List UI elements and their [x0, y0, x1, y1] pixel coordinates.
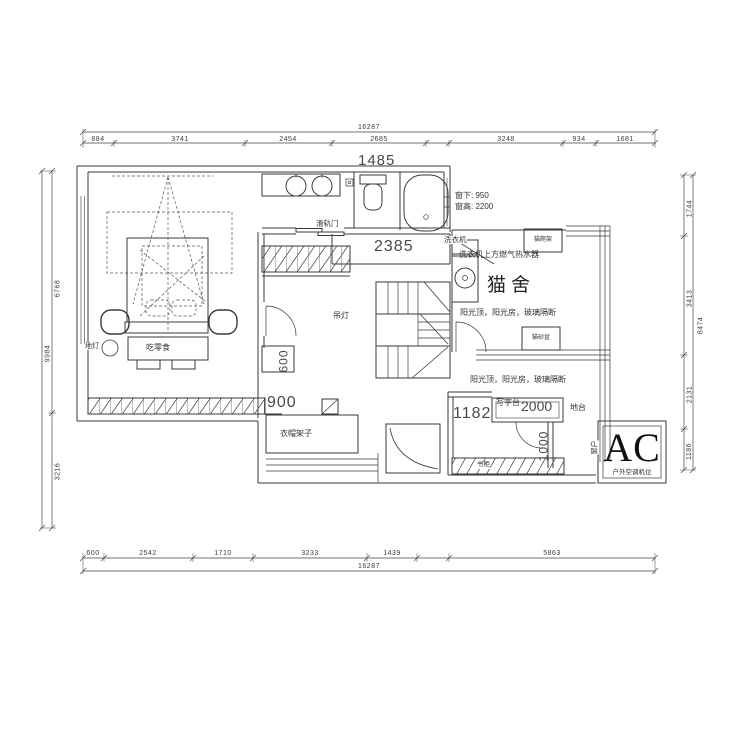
dim-bottom-seg: 3233 — [301, 550, 319, 557]
dim-closet-600: 600 — [278, 349, 290, 372]
dim-top-seg: 884 — [91, 136, 104, 143]
sunroom-note-2: 阳光顶，阳光房，玻璃隔断 — [470, 376, 566, 384]
dim-door-1000: 1000 — [537, 431, 549, 462]
sunroom-note-1: 阳光顶，阳光房，玻璃隔断 — [460, 309, 556, 317]
dim-right-seg: 2131 — [686, 386, 693, 404]
floor-plan: 16287 884 3741 2454 2685 3248 934 1681 6… — [0, 0, 740, 740]
desk-label-row: 写字台2000 — [496, 399, 552, 413]
window-height-note: 窗高: 2200 — [455, 203, 493, 211]
dim-top-seg: 3741 — [171, 136, 189, 143]
window-label-vertical: 窗户 — [592, 441, 599, 455]
dim-hall-2385: 2385 — [374, 239, 414, 255]
ac-unit-label: AC — [602, 428, 662, 468]
sliding-door-label: 滑轨门 — [316, 220, 339, 228]
dim-right-seg: 1744 — [686, 200, 693, 218]
dim-room-1182: 1182 — [453, 406, 491, 422]
floor-lamp-label: 地灯 — [85, 343, 99, 350]
dim-right-seg: 3413 — [686, 290, 693, 308]
dim-top-total: 16287 — [356, 124, 382, 131]
bookcase-label: 书柜 — [477, 462, 490, 469]
pendant-light-label: 吊灯 — [333, 312, 349, 320]
dim-cabinet-900: 900 — [267, 395, 297, 411]
dim-left-seg: 6768 — [54, 280, 61, 298]
platform-label: 地台 — [570, 404, 586, 412]
dim-entry-1485: 1485 — [358, 153, 395, 168]
desk-label: 写字台 — [496, 399, 520, 407]
dim-desk-2000: 2000 — [521, 399, 552, 413]
dim-top-seg: 934 — [572, 136, 585, 143]
dim-top-seg: 3248 — [497, 136, 515, 143]
dim-bottom-seg: 1439 — [383, 550, 401, 557]
dim-right-total: 8474 — [697, 317, 704, 335]
dim-left-seg: 3216 — [54, 463, 61, 481]
plan-linework — [0, 0, 740, 740]
ac-note: 户外空调机位 — [600, 470, 664, 477]
dim-left-total: 9984 — [44, 345, 51, 363]
dim-top-seg: 2454 — [279, 136, 297, 143]
dim-right-seg: 1186 — [686, 443, 693, 460]
dim-bottom-seg: 5863 — [543, 550, 561, 557]
window-sill-note: 窗下: 950 — [455, 192, 489, 200]
cat-tree-label: 猫爬架 — [527, 237, 559, 243]
water-heater-note: 洗衣机上方燃气热水器 — [459, 251, 539, 259]
dim-top-seg: 1681 — [616, 136, 634, 143]
dim-top-seg: 2685 — [370, 136, 388, 143]
dim-bottom-total: 16287 — [356, 563, 382, 570]
dim-bottom-seg: 600 — [86, 550, 99, 557]
dimension-lines — [39, 129, 696, 574]
litter-box-label: 猫砂盆 — [525, 335, 557, 341]
walls — [77, 166, 666, 483]
dim-bottom-seg: 2542 — [139, 550, 157, 557]
snack-bench-label: 吃零食 — [146, 344, 170, 352]
dashed-lines — [107, 176, 232, 333]
coat-rack-label: 衣帽架子 — [280, 430, 312, 438]
dim-bottom-seg: 1710 — [214, 550, 232, 557]
washer-label: 洗衣机 — [444, 236, 467, 244]
cat-house-label: 猫舍 — [487, 276, 535, 295]
